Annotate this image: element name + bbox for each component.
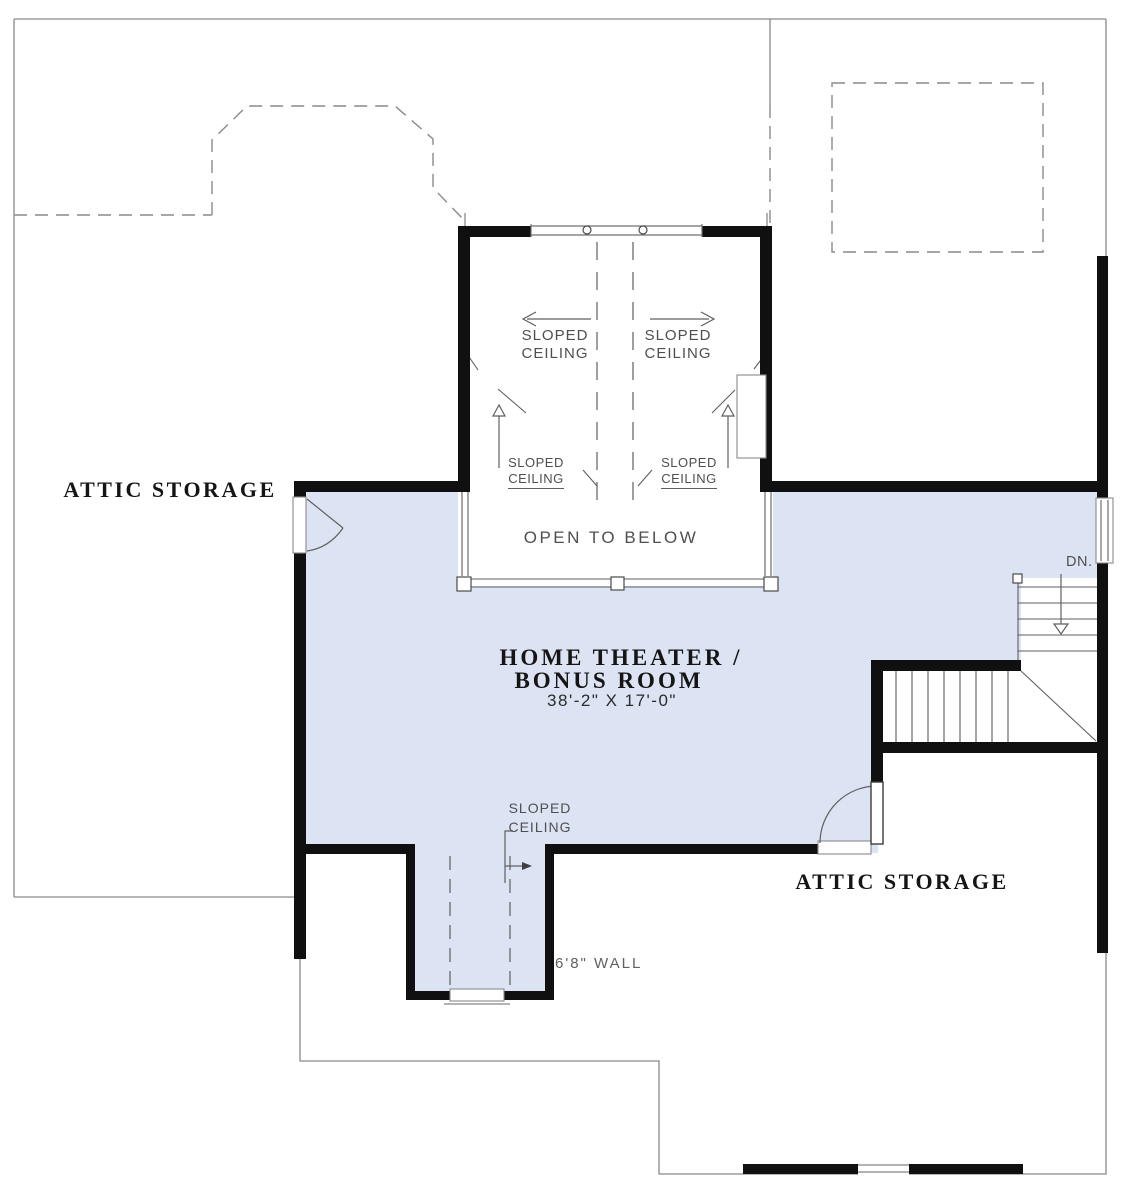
stair-newel-post [1013, 574, 1022, 583]
stairs-down-label: DN. [1066, 554, 1092, 570]
stair-lower-treads [896, 671, 1008, 742]
sloped-ceiling-dormer-label: SLOPED CEILING [490, 799, 590, 837]
ceiling-word: CEILING [508, 819, 571, 835]
dormer-window [444, 989, 510, 1004]
sloped-word: SLOPED [509, 800, 572, 816]
sloped-word: SLOPED [661, 455, 717, 470]
stair-winder-line [1021, 671, 1096, 741]
sloped-word: SLOPED [508, 455, 564, 470]
slope-arrow-up-right-head-icon [722, 405, 734, 416]
floor-plan: ATTIC STORAGE ATTIC STORAGE HOME THEATER… [0, 0, 1130, 1200]
stairs-down-arrow-head-icon [1054, 624, 1068, 634]
open-below-top-window [531, 222, 702, 238]
stair-upper-treads [1018, 587, 1097, 651]
slope-arrow-up-left-head-icon [493, 405, 505, 416]
railing-post [764, 577, 778, 591]
attic-storage-left-label: ATTIC STORAGE [30, 477, 310, 503]
sloped-ceiling-lower-right-label: SLOPED CEILING [639, 455, 739, 489]
ceiling-word: CEILING [644, 345, 711, 362]
chimney-chase [737, 375, 766, 458]
attic-storage-right-label: ATTIC STORAGE [762, 869, 1042, 895]
railing-post [611, 577, 624, 590]
turret-roof-outline [14, 106, 465, 221]
sloped-word: SLOPED [522, 327, 589, 344]
bonus-room-dimensions: 38'-2" X 17'-0" [432, 691, 792, 711]
sloped-ceiling-upper-left-label: SLOPED CEILING [505, 327, 605, 363]
sloped-ceiling-lower-left-label: SLOPED CEILING [486, 455, 586, 489]
sloped-ceiling-upper-right-label: SLOPED CEILING [628, 327, 728, 363]
ridge-centerlines [597, 242, 633, 500]
floor-plan-drawing [0, 0, 1130, 1200]
wall-height-label: 6'8" WALL [555, 955, 642, 972]
railing-post [457, 577, 471, 591]
bonus-room-floor-fill [296, 481, 1108, 999]
door-leaf [871, 782, 883, 844]
ceiling-word: CEILING [508, 471, 564, 489]
ceiling-word: CEILING [521, 345, 588, 362]
window-mullion-dot [583, 226, 591, 234]
window-mullion-dot [639, 226, 647, 234]
stair-landing-window [1096, 498, 1113, 563]
sloped-word: SLOPED [645, 327, 712, 344]
attic-bottom-window [858, 1163, 909, 1175]
ceiling-word: CEILING [661, 471, 717, 489]
chimney-roof-outline [832, 83, 1043, 252]
open-to-below-label: OPEN TO BELOW [431, 528, 791, 548]
